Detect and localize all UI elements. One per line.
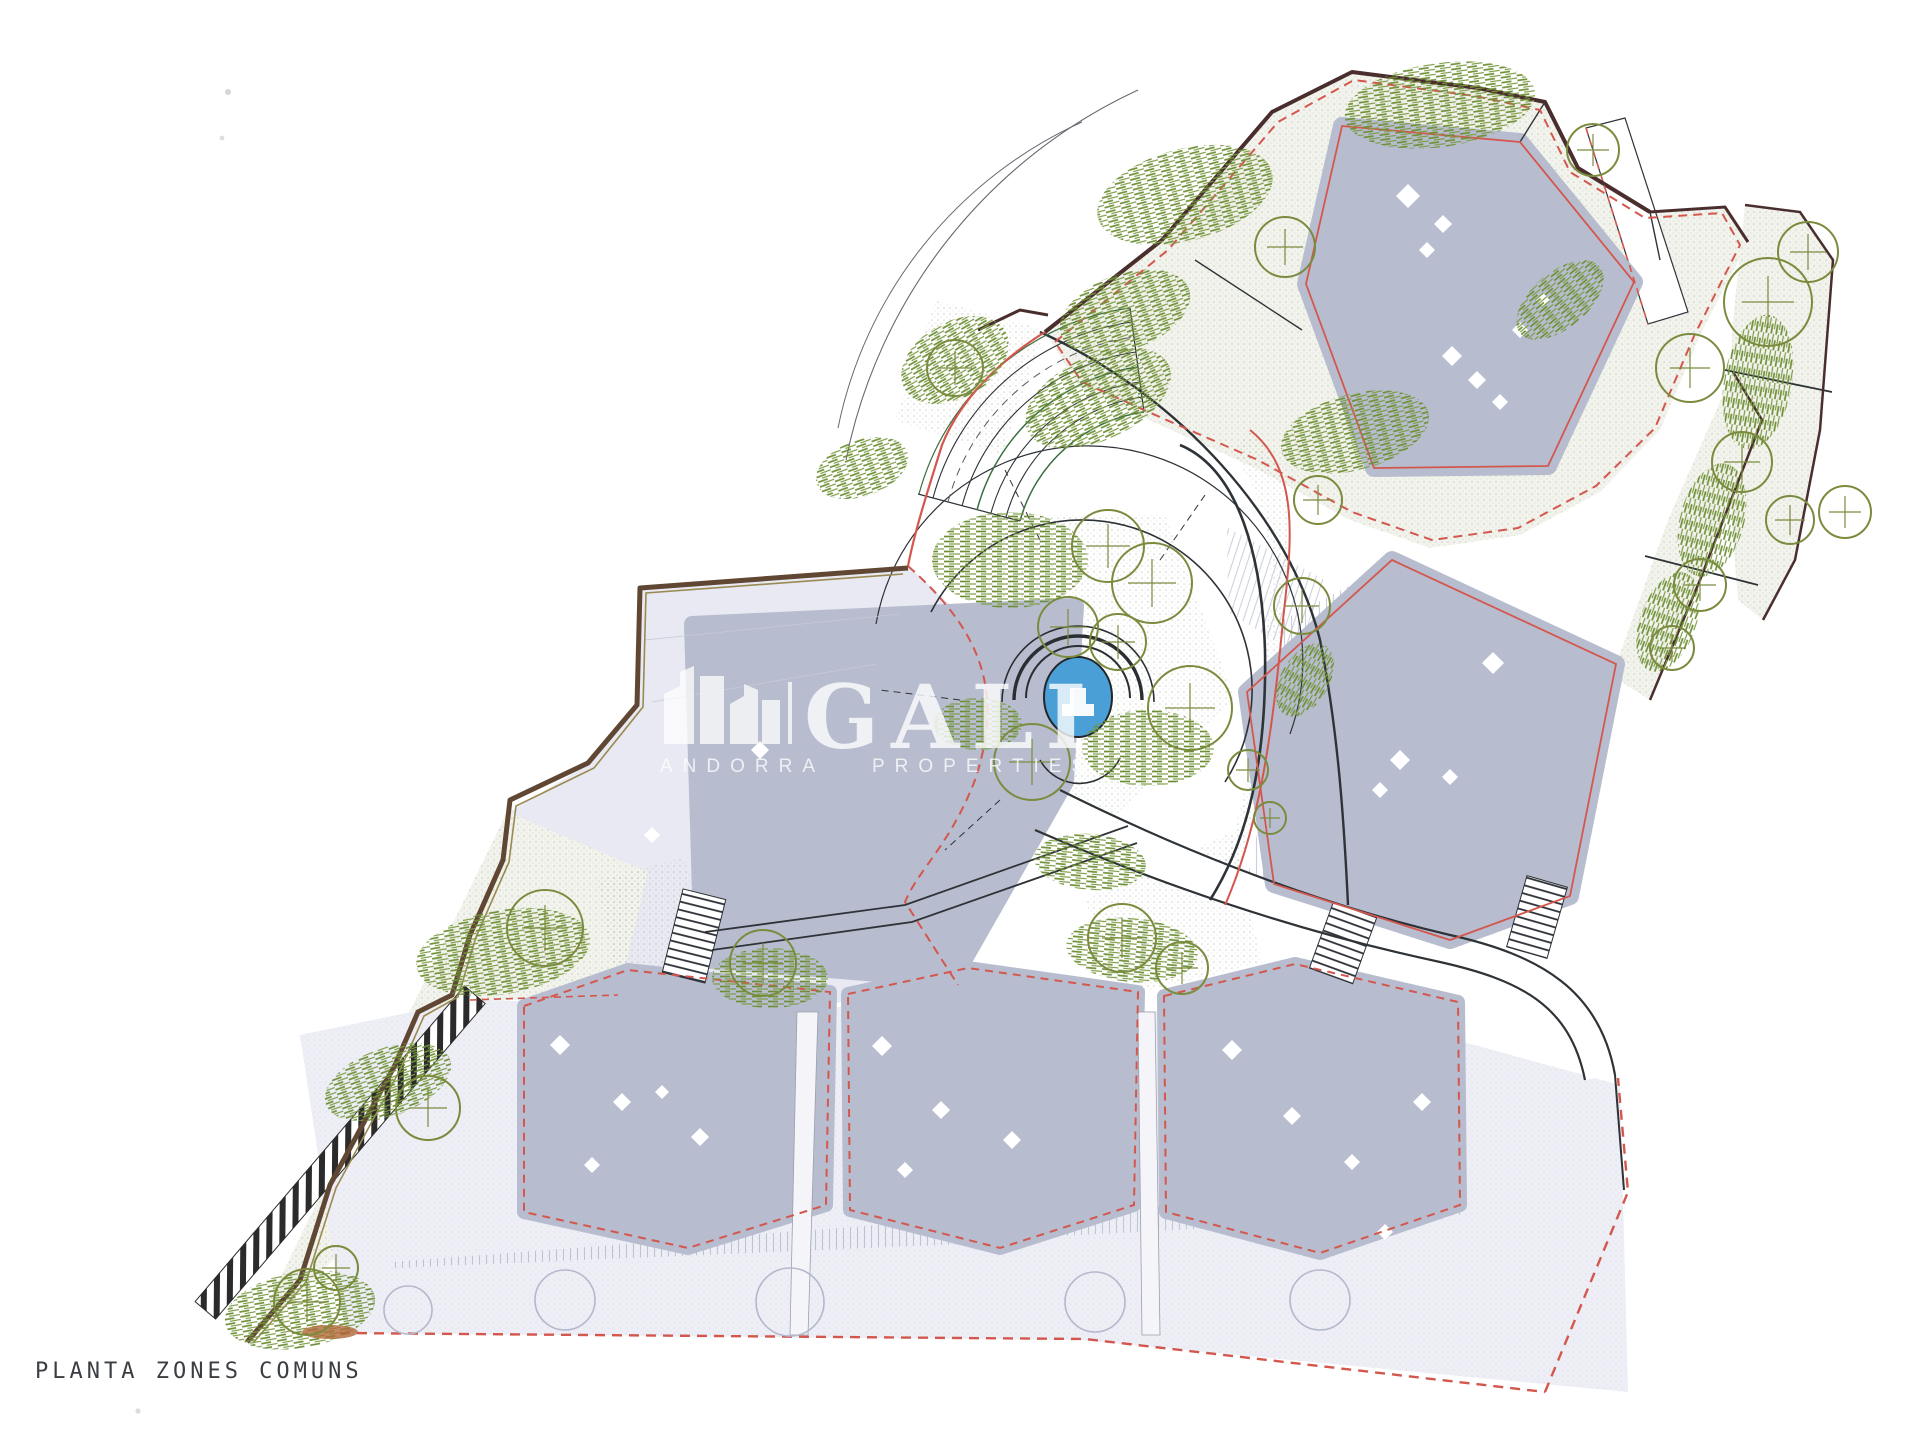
bottom-building-1-roof (524, 970, 830, 1248)
site-plan-page: GALI ANDORRA PROPERTIES PLANTA ZONES COM… (0, 0, 1920, 1451)
shrub-patch-brown (302, 1325, 358, 1339)
speck (135, 1408, 140, 1413)
watermark-brand-text: GALI (804, 665, 1098, 769)
watermark-word-properties: PROPERTIES (872, 756, 1094, 777)
shrub-patch (1082, 710, 1214, 786)
watermark-tower-4 (762, 700, 780, 744)
plan-title: PLANTA ZONES COMUNS (35, 1359, 363, 1384)
bottom-building-3-roof (1164, 964, 1460, 1253)
bottom-building-2-roof (848, 968, 1138, 1248)
watermark-tower-2 (700, 676, 724, 744)
speck (220, 136, 225, 141)
watermark-word-andorra: ANDORRA (660, 756, 825, 777)
watermark-divider-bar (788, 682, 792, 744)
shrub-patch (932, 512, 1088, 608)
speck (225, 89, 231, 95)
shrub-patch (712, 948, 828, 1008)
site-plan-drawing: GALI ANDORRA PROPERTIES PLANTA ZONES COM… (0, 0, 1920, 1451)
